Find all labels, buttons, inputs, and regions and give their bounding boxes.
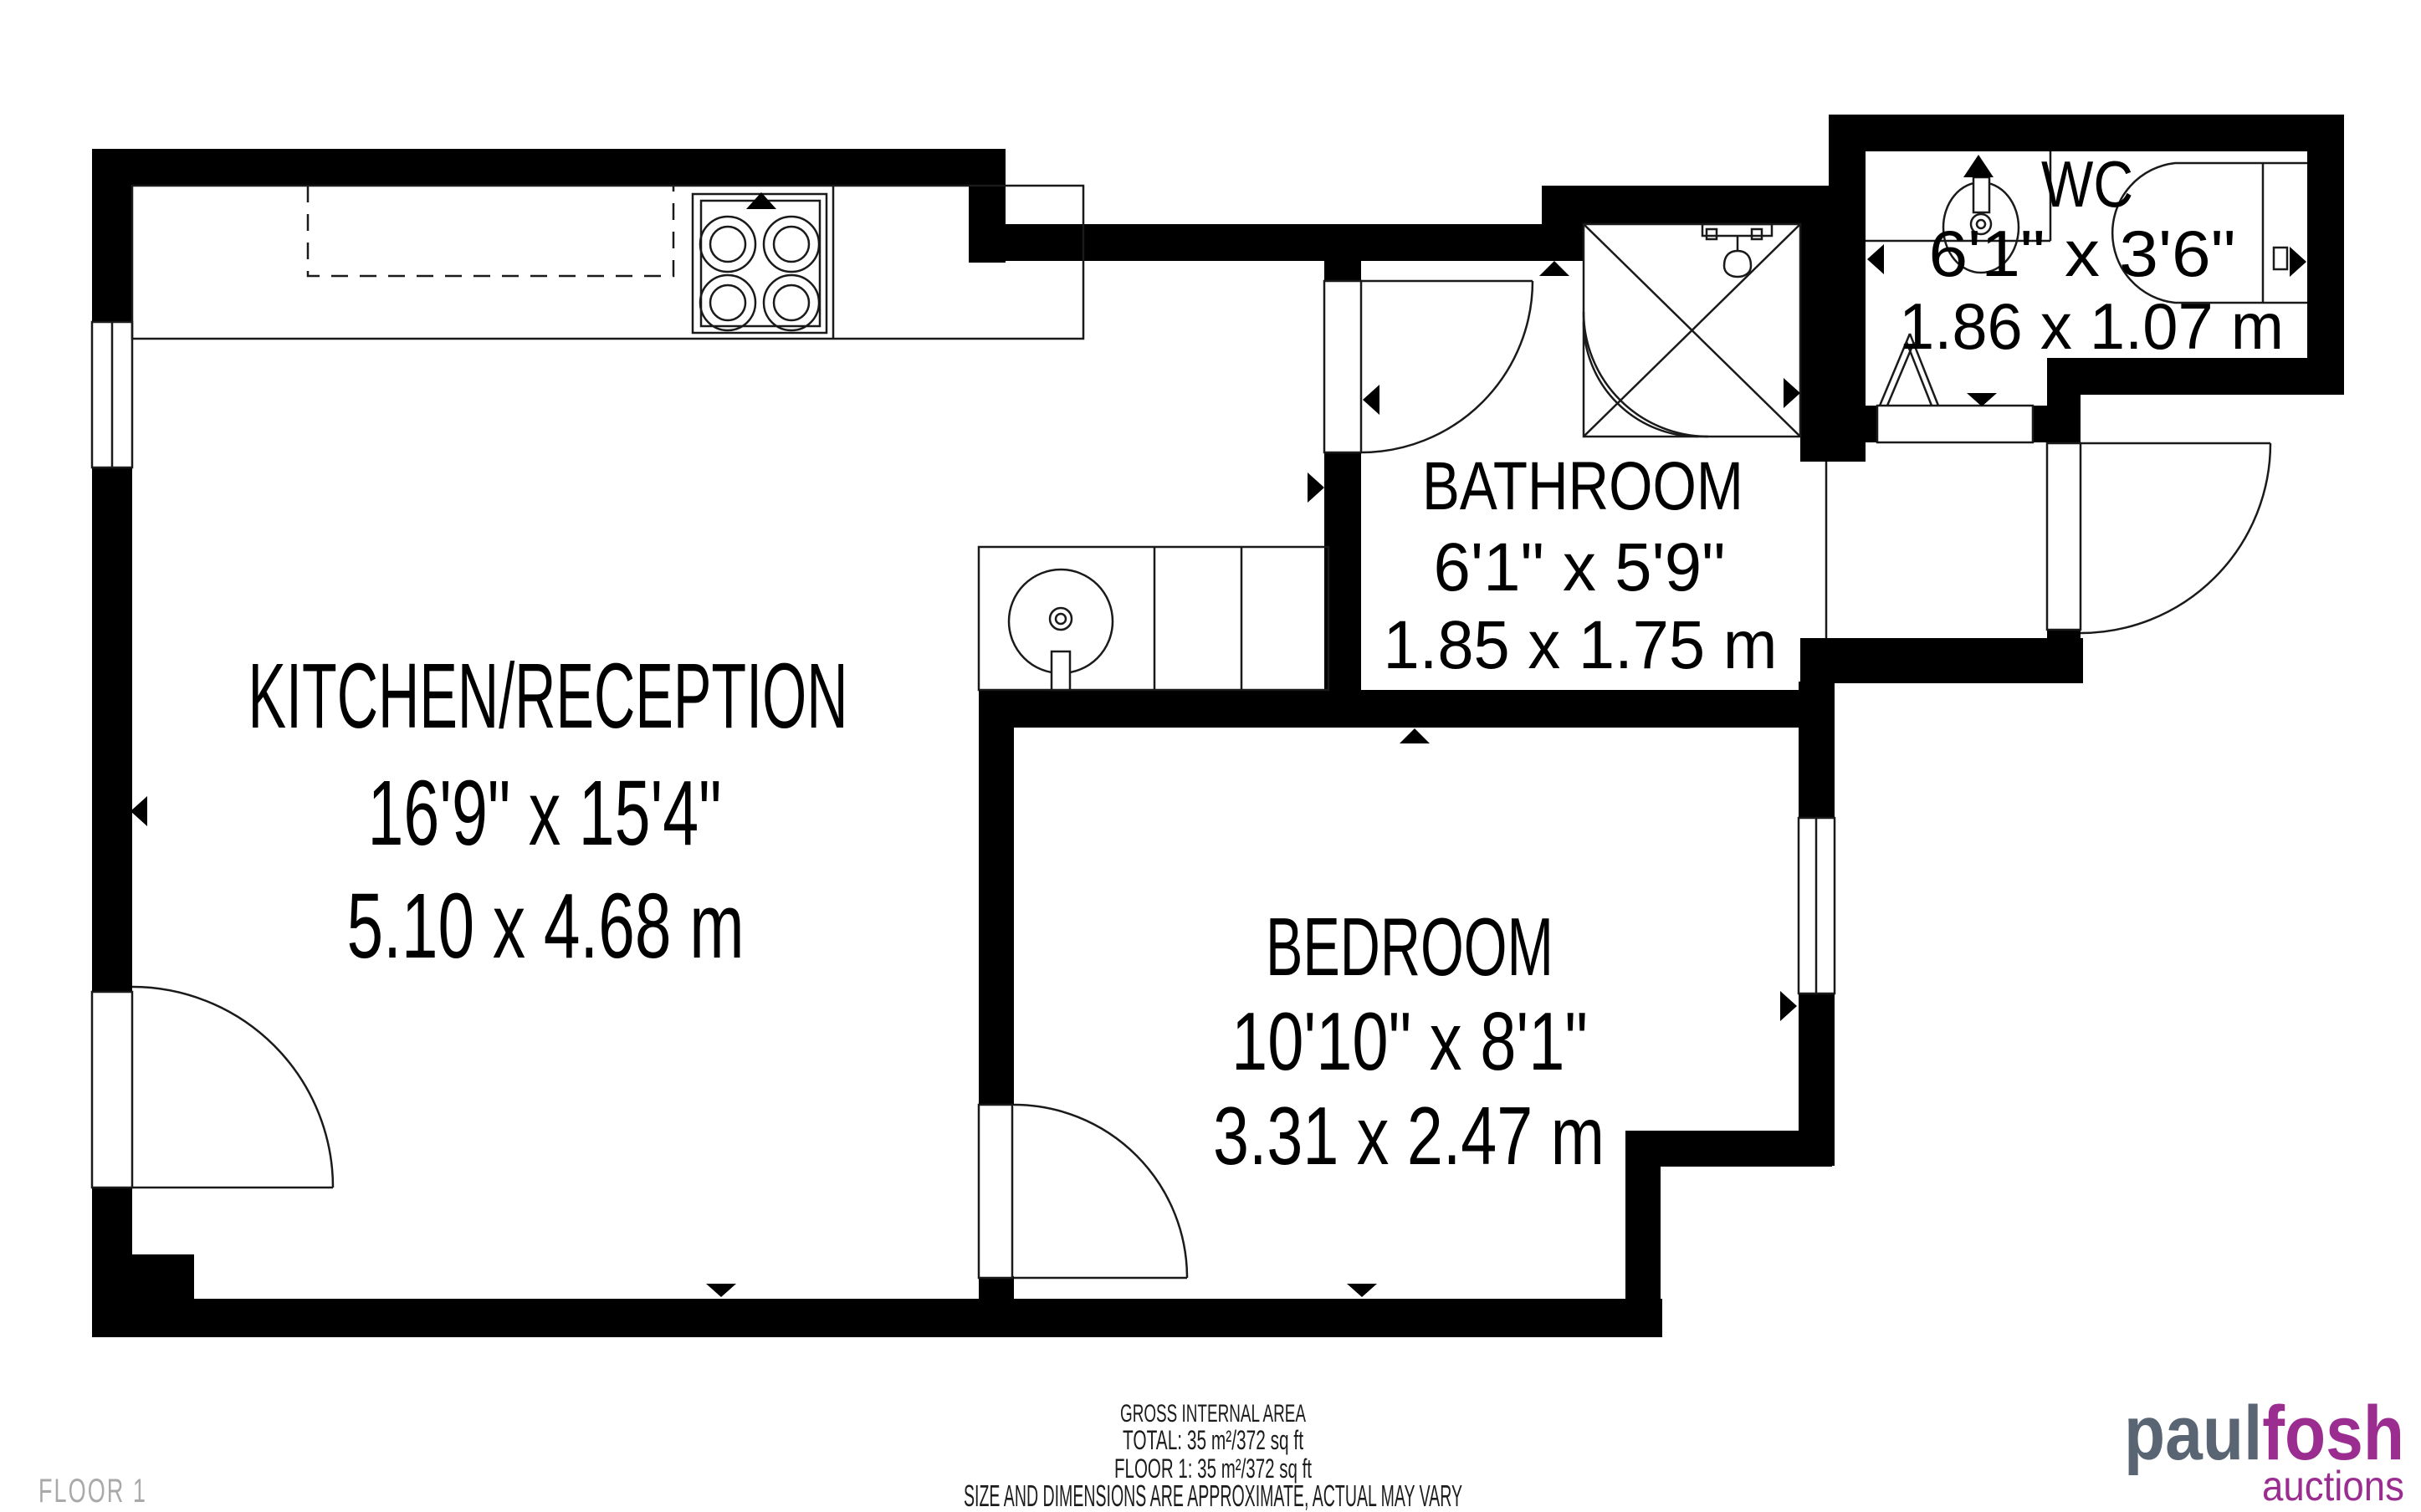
kitchen-dimensions-imperial: 16'9" x 15'4": [368, 762, 722, 865]
marker-right-icon: [1784, 378, 1800, 408]
marker-right-icon: [1780, 991, 1797, 1021]
wall-wc-top: [1829, 115, 2344, 151]
kitchen-entry-door-opening: [92, 992, 132, 1188]
wall-entrance-stub-top: [2047, 395, 2081, 443]
kitchen-sink-drain-icon: [1056, 614, 1066, 624]
wall-upper-a: [1006, 224, 1583, 261]
marker-left-icon: [1867, 244, 1884, 274]
marker-right-icon: [1308, 472, 1324, 503]
burner-icon: [774, 285, 809, 320]
marker-right-icon: [2290, 247, 2306, 277]
bathroom-dimensions-imperial: 6'1" x 5'9": [1434, 529, 1726, 605]
marker-up-icon: [1400, 728, 1430, 743]
total-area-value: TOTAL: 35 m²/372 sq ft: [1123, 1425, 1303, 1455]
paul-fosh-auctions-logo: paulfosh auctions: [2124, 1391, 2404, 1509]
wall-bottom: [92, 1299, 1662, 1337]
wall-bathroom-door-stub: [1324, 261, 1361, 281]
stove-burners: [700, 217, 819, 330]
marker-down-icon: [706, 1284, 736, 1297]
shower-rail-end: [1707, 229, 1717, 239]
burner-icon: [710, 285, 745, 320]
disclaimer-text: SIZE AND DIMENSIONS ARE APPROXIMATE, ACT…: [964, 1479, 1462, 1512]
marker-down-icon: [1347, 1284, 1377, 1297]
bathroom-door-arc: [1361, 281, 1533, 452]
wall-top-kitchen: [92, 149, 1006, 186]
bedroom-dimensions-imperial: 10'10" x 8'1": [1231, 995, 1588, 1087]
bedroom-door-opening: [979, 1105, 1012, 1278]
wall-lobby-stub-right: [2033, 406, 2047, 442]
wall-corner-step: [132, 1254, 194, 1300]
bathroom-door-opening: [1324, 281, 1361, 452]
burner-icon: [764, 275, 819, 330]
wall-left-lower: [92, 1186, 132, 1336]
wc-lobby-doorway: [1877, 406, 2033, 442]
floorplan-page: KITCHEN/RECEPTION 16'9" x 15'4" 5.10 x 4…: [0, 0, 2421, 1512]
entrance-door-opening: [2047, 443, 2081, 630]
wall-left-upper: [92, 149, 132, 323]
burner-icon: [700, 275, 755, 330]
bathroom-dimensions-metric: 1.85 x 1.75 m: [1384, 607, 1778, 683]
wall-wc-bottom: [2047, 358, 2344, 395]
burner-icon: [700, 217, 755, 272]
wall-entrance-stub-bottom: [2047, 630, 2081, 683]
kitchen-dimensions-metric: 5.10 x 4.68 m: [347, 875, 745, 978]
burner-icon: [764, 217, 819, 272]
logo-word-auctions: auctions: [2262, 1463, 2404, 1509]
shower-rail-end: [1752, 229, 1762, 239]
marker-down-icon: [1967, 393, 1997, 406]
bathtub-tap-icon: [2274, 248, 2287, 269]
floor-page-label: FLOOR 1: [38, 1473, 147, 1509]
wall-bedroom-step-vertical: [1625, 1167, 1661, 1300]
kitchen-sink-tap-icon: [1052, 651, 1070, 690]
burner-icon: [710, 227, 745, 262]
floorplan-drawing: KITCHEN/RECEPTION 16'9" x 15'4" 5.10 x 4…: [0, 0, 2421, 1512]
wc-basin-tap-icon: [1973, 177, 1989, 212]
gross-internal-area-label: GROSS INTERNAL AREA: [1120, 1400, 1306, 1428]
bedroom-dimensions-metric: 3.31 x 2.47 m: [1213, 1090, 1605, 1182]
marker-up-icon: [1963, 155, 1994, 177]
entrance-door-arc: [2081, 443, 2270, 633]
wc-dimensions-metric: 1.86 x 1.07 m: [1899, 289, 2284, 363]
wall-bathroom-right: [1800, 224, 1866, 462]
wall-upper-b: [1542, 186, 1866, 224]
shower-head-icon: [1724, 251, 1751, 277]
wall-bedroom-top: [979, 690, 1800, 728]
kitchen-fixtures: [132, 186, 1328, 690]
marker-left-icon: [1363, 385, 1379, 415]
footer: GROSS INTERNAL AREA TOTAL: 35 m²/372 sq …: [38, 1400, 1462, 1512]
kitchen-entry-door-arc: [132, 987, 333, 1188]
kitchen-counter: [132, 186, 1083, 339]
wall-lobby-stub-left: [1866, 406, 1877, 442]
wc-label: WC: [2041, 147, 2133, 221]
wc-dimensions-imperial: 6'1" x 3'6": [1929, 217, 2236, 290]
burner-icon: [774, 227, 809, 262]
wall-bedroom-right-upper: [1799, 682, 1835, 820]
wall-left-mid: [92, 467, 132, 994]
bedroom-door-arc: [1014, 1105, 1187, 1278]
kitchen-sink-drain-icon: [1050, 608, 1072, 630]
wall-bedroom-left: [979, 728, 1014, 1106]
wall-bedroom-left-stub: [979, 1276, 1014, 1300]
wall-kitchen-bathroom: [1324, 452, 1361, 692]
bathroom-label: BATHROOM: [1422, 448, 1743, 524]
wall-top-step: [969, 186, 1006, 263]
wall-bedroom-step-horizontal: [1625, 1131, 1832, 1167]
marker-up-icon: [1539, 261, 1569, 276]
kitchen-wall-units-dashed: [308, 186, 673, 276]
logo-word-paul: paul: [2124, 1391, 2262, 1476]
marker-left-icon: [131, 796, 147, 826]
wall-wc-right: [2307, 115, 2344, 395]
bedroom-label: BEDROOM: [1266, 901, 1553, 993]
kitchen-label: KITCHEN/RECEPTION: [248, 645, 848, 748]
wall-vestibule-bottom: [1800, 638, 2083, 683]
